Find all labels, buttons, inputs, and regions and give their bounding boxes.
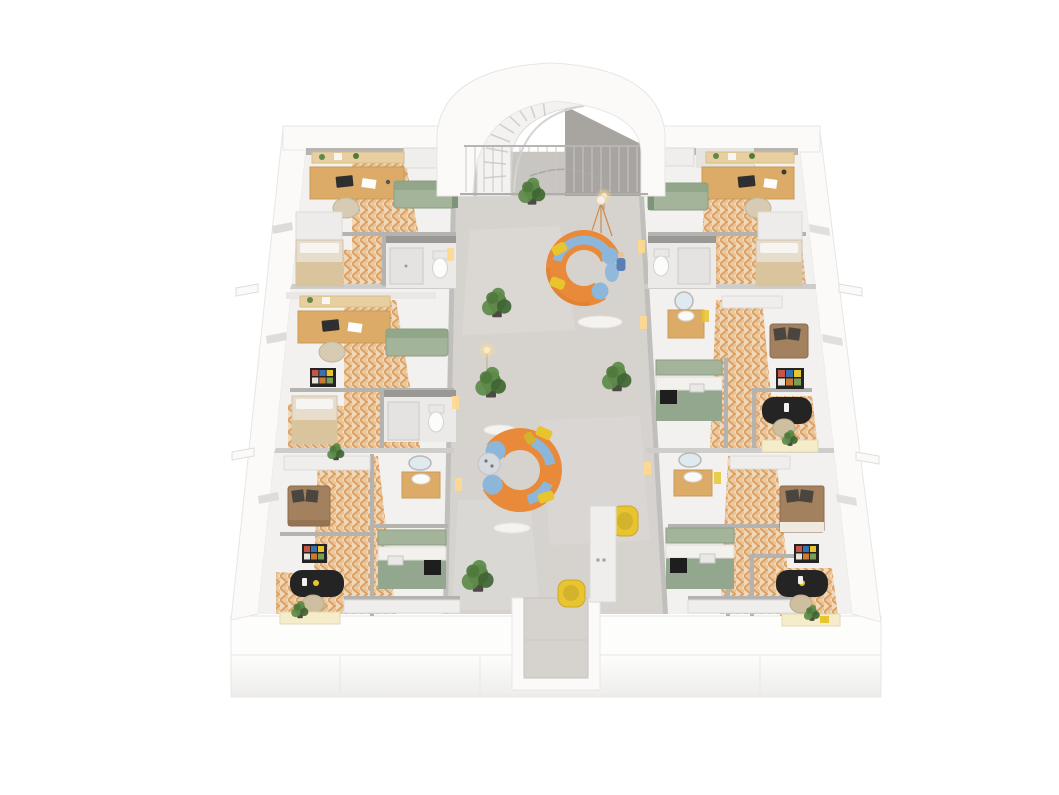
standing-counter [590,506,616,602]
floorplan-render [0,0,1059,795]
wall-lamp [452,396,459,409]
shower [388,402,419,440]
desk-chair [319,342,345,362]
vanity-sink [684,472,702,482]
wall-lamp [640,316,647,329]
book [796,546,802,552]
bed-pillow [760,243,798,253]
shelf-plant [319,154,325,160]
plant-foliage [480,371,493,384]
bed-pillow [300,243,339,253]
book [327,378,333,384]
sofa-cushion [291,489,305,503]
sofa-cushion [785,489,800,503]
kitchen-upper [378,530,446,545]
book [312,378,318,384]
bath-dark-wall [648,236,716,243]
plant-foliage [532,188,545,201]
partition-wall [380,390,384,448]
shelf-plant [307,297,313,303]
kitchen-upper [666,528,734,543]
bath-dark-wall [384,390,456,397]
desk-mid-left [298,311,390,343]
laptop [336,175,354,188]
sofa-cushion [799,489,814,503]
shelf-mid-left [300,296,390,307]
ground-shadow [231,694,881,697]
partition-wall [752,388,756,448]
bed-blanket [296,262,343,286]
wall-lamp [638,240,645,253]
partition-wall [372,524,448,528]
plant-foliage [522,182,533,193]
plant-foliage [486,292,498,304]
plant-foliage [466,565,479,578]
shelf-plant [353,153,359,159]
bottom-pod-wall [688,596,800,600]
bed-pillow [296,399,333,409]
book [312,370,318,376]
wall-bookshelf [776,368,804,389]
book [778,370,785,377]
book [803,546,809,552]
wall-bookshelf [310,368,336,387]
book [794,370,801,377]
person-figure-body [617,258,626,271]
shower [678,248,710,284]
shelf-frame [322,297,330,304]
towel [714,472,721,484]
partition-wall [280,532,372,536]
toilet [654,256,669,276]
plant-foliage [806,607,813,614]
shelf-plant [749,153,755,159]
table-deco [302,578,307,586]
wall-lamp [644,462,651,475]
partition-wall [382,236,386,286]
book [796,554,802,560]
pendant-lamp [597,196,606,205]
sofa-end-seat [592,283,609,300]
wall-fin-left [236,284,258,296]
wall-bookshelf [794,544,819,563]
sofa-end-seat [602,248,619,265]
book [786,379,793,386]
desk-mug [386,180,390,184]
window-desk [280,612,340,624]
plant-foliage [790,436,798,444]
side-table [478,453,500,475]
wall-bookshelf [302,544,327,563]
plant-foliage [812,611,820,619]
table-deco [784,403,789,412]
sofa-end-seat [483,475,503,495]
deco-yellow [820,616,829,623]
book [810,554,816,560]
laptop [738,175,756,188]
bath-dark-wall [386,236,456,243]
counter-faucet [596,558,600,562]
unit-divider-left-2 [274,448,454,453]
sheepskin-rug [494,523,530,533]
shelf-plant [713,153,719,159]
armchair-seat [617,512,633,530]
book [794,379,801,386]
book [786,370,793,377]
cooktop [424,560,441,575]
vanity-sink [412,474,430,484]
person-figure-head [618,252,624,258]
green-sofa-back [386,329,448,338]
plant-foliage [294,604,301,611]
book [304,546,310,552]
bottom-counter-right [688,600,800,613]
kitchen-sink [690,384,704,392]
cooktop [660,390,677,404]
vanity-mirror [675,292,693,310]
cooktop [670,558,687,573]
sofa-cushion [305,489,318,502]
bottom-counter-left [344,600,460,613]
bed-blanket [292,420,337,444]
table-deco [484,459,487,462]
plant-foliage [330,446,337,453]
book [327,370,333,376]
vanity-sink [678,311,694,321]
counter-mid-right [722,296,782,308]
wall-lamp [455,478,462,491]
counter-faucet [602,558,606,562]
paper [763,178,777,189]
toilet [433,258,448,278]
book [319,378,325,384]
plant-foliage [491,379,506,394]
lamp-bulb [484,347,490,353]
bed-blanket [756,262,802,286]
shower-drain [405,265,408,268]
bottom-pod-wall [344,596,460,600]
plant-foliage [784,432,791,439]
vanity-mirror [409,456,431,470]
armchair-seat [563,585,579,601]
kitchen-worktop [656,377,722,390]
plant-foliage [606,366,618,378]
bed-sheet [780,522,824,532]
wardrobe [758,212,802,240]
top-wall-left [283,126,443,150]
book [311,546,317,552]
shelf-frame [334,153,342,160]
book [311,554,317,560]
plant-foliage [478,572,494,588]
sofa-cushion [773,327,787,341]
sheepskin-rug [578,316,622,328]
plant-foliage [300,608,308,616]
table-deco [798,576,803,584]
table-deco [313,580,319,586]
floor-lamp-orb [478,341,496,359]
plant-foliage [617,373,631,387]
wardrobe [296,212,342,240]
plant-foliage [497,299,511,313]
book [803,554,809,560]
wall-lamp [447,248,454,261]
towel [702,310,709,322]
toilet [429,412,444,432]
book [319,370,325,376]
sideboard [284,456,370,470]
book [778,379,785,386]
book [810,546,816,552]
concrete-light-patch [452,498,540,610]
kitchen-upper [656,360,722,375]
wall-fin-right [839,284,862,296]
table-deco [490,464,493,467]
kitchen-sink [388,556,403,565]
book [304,554,310,560]
laptop [322,319,340,332]
counter-bottom-right [730,456,790,469]
kitchen-sink [700,554,715,563]
shelf-frame [728,153,736,160]
sofa-arm [288,520,330,526]
partition-wall [724,358,728,448]
desk-lamp [782,170,787,175]
sofa-cushion [787,327,801,341]
book [318,546,324,552]
vestibule-floor [524,598,588,678]
floorplan-svg [0,0,1059,795]
book [318,554,324,560]
vanity-mirror [679,453,701,467]
plant-foliage [336,450,344,458]
